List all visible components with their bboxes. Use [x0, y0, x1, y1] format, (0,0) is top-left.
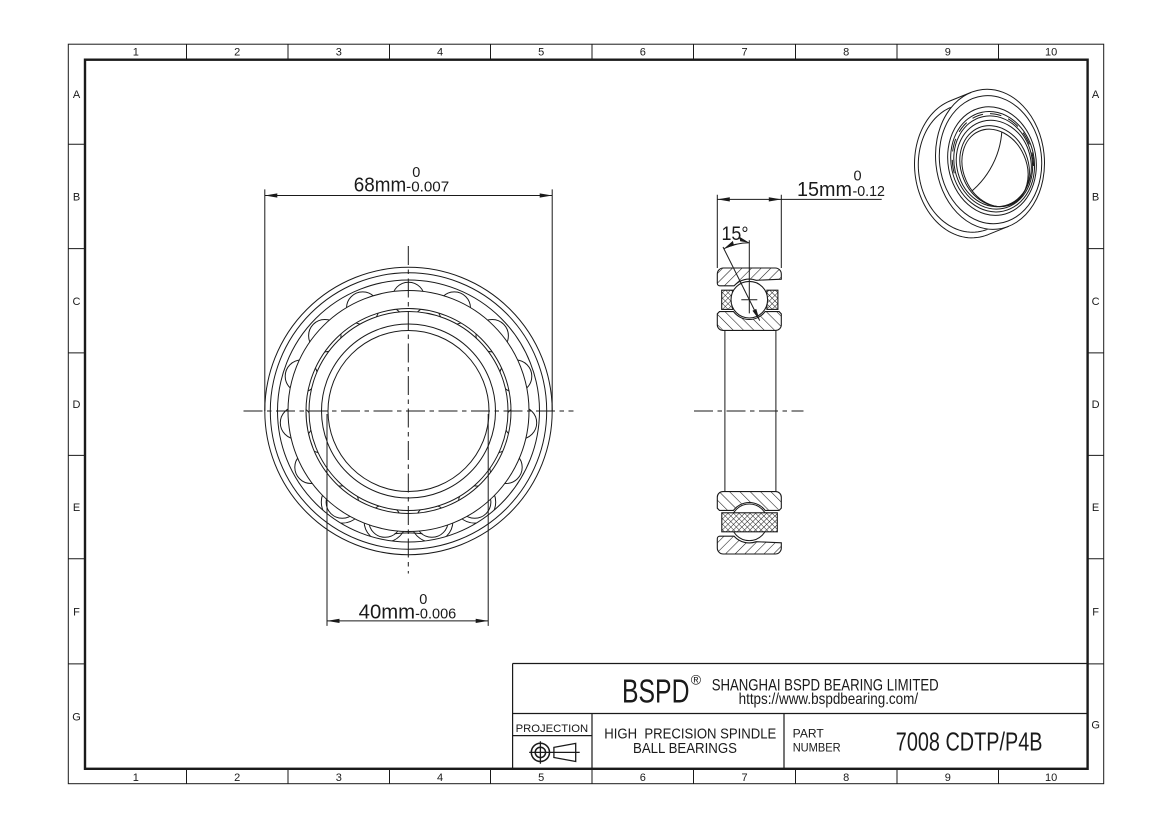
svg-text:2: 2 [234, 772, 240, 784]
svg-text:40mm: 40mm [359, 602, 415, 624]
svg-text:E: E [73, 502, 80, 514]
svg-text:8: 8 [843, 772, 849, 784]
svg-text:E: E [1092, 502, 1099, 514]
svg-text:68mm: 68mm [354, 175, 406, 197]
svg-text:C: C [1092, 296, 1100, 308]
svg-text:D: D [1092, 399, 1100, 411]
svg-text:-0.12: -0.12 [853, 184, 886, 200]
svg-text:BALL BEARINGS: BALL BEARINGS [633, 740, 737, 757]
svg-text:6: 6 [640, 47, 646, 59]
svg-text:10: 10 [1045, 772, 1057, 784]
svg-text:5: 5 [538, 772, 544, 784]
svg-text:1: 1 [133, 47, 139, 59]
svg-text:G: G [1091, 719, 1100, 731]
svg-text:B: B [1092, 191, 1099, 203]
svg-text:NUMBER: NUMBER [793, 741, 841, 755]
svg-text:A: A [1092, 89, 1100, 101]
svg-text:4: 4 [437, 772, 443, 784]
svg-text:D: D [73, 399, 81, 411]
svg-text:8: 8 [843, 47, 849, 59]
svg-text:F: F [73, 606, 80, 618]
svg-text:4: 4 [437, 47, 443, 59]
svg-text:B: B [73, 191, 80, 203]
svg-text:A: A [73, 89, 81, 101]
svg-text:https://www.bspdbearing.com/: https://www.bspdbearing.com/ [739, 691, 919, 708]
svg-text:C: C [73, 296, 81, 308]
svg-text:-0.007: -0.007 [406, 180, 449, 196]
svg-text:6: 6 [640, 772, 646, 784]
svg-text:BSPD: BSPD [622, 672, 690, 709]
svg-text:G: G [72, 711, 81, 723]
svg-text:PART: PART [793, 727, 825, 741]
svg-text:10: 10 [1045, 47, 1057, 59]
svg-text:3: 3 [336, 772, 342, 784]
svg-text:15mm: 15mm [797, 179, 852, 201]
svg-text:7: 7 [741, 772, 747, 784]
svg-text:3: 3 [336, 47, 342, 59]
svg-text:2: 2 [234, 47, 240, 59]
svg-text:7: 7 [741, 47, 747, 59]
svg-text:5: 5 [538, 47, 544, 59]
svg-text:F: F [1092, 606, 1099, 618]
svg-text:0: 0 [419, 592, 427, 608]
svg-text:1: 1 [133, 772, 139, 784]
svg-text:15°: 15° [722, 224, 749, 245]
svg-text:®: ® [691, 671, 702, 687]
svg-text:0: 0 [854, 169, 862, 185]
svg-text:0: 0 [412, 165, 420, 181]
svg-text:9: 9 [945, 47, 951, 59]
svg-text:9: 9 [945, 772, 951, 784]
svg-text:PROJECTION: PROJECTION [516, 723, 589, 735]
svg-text:-0.006: -0.006 [415, 607, 456, 623]
svg-text:7008 CDTP/P4B: 7008 CDTP/P4B [896, 726, 1043, 756]
